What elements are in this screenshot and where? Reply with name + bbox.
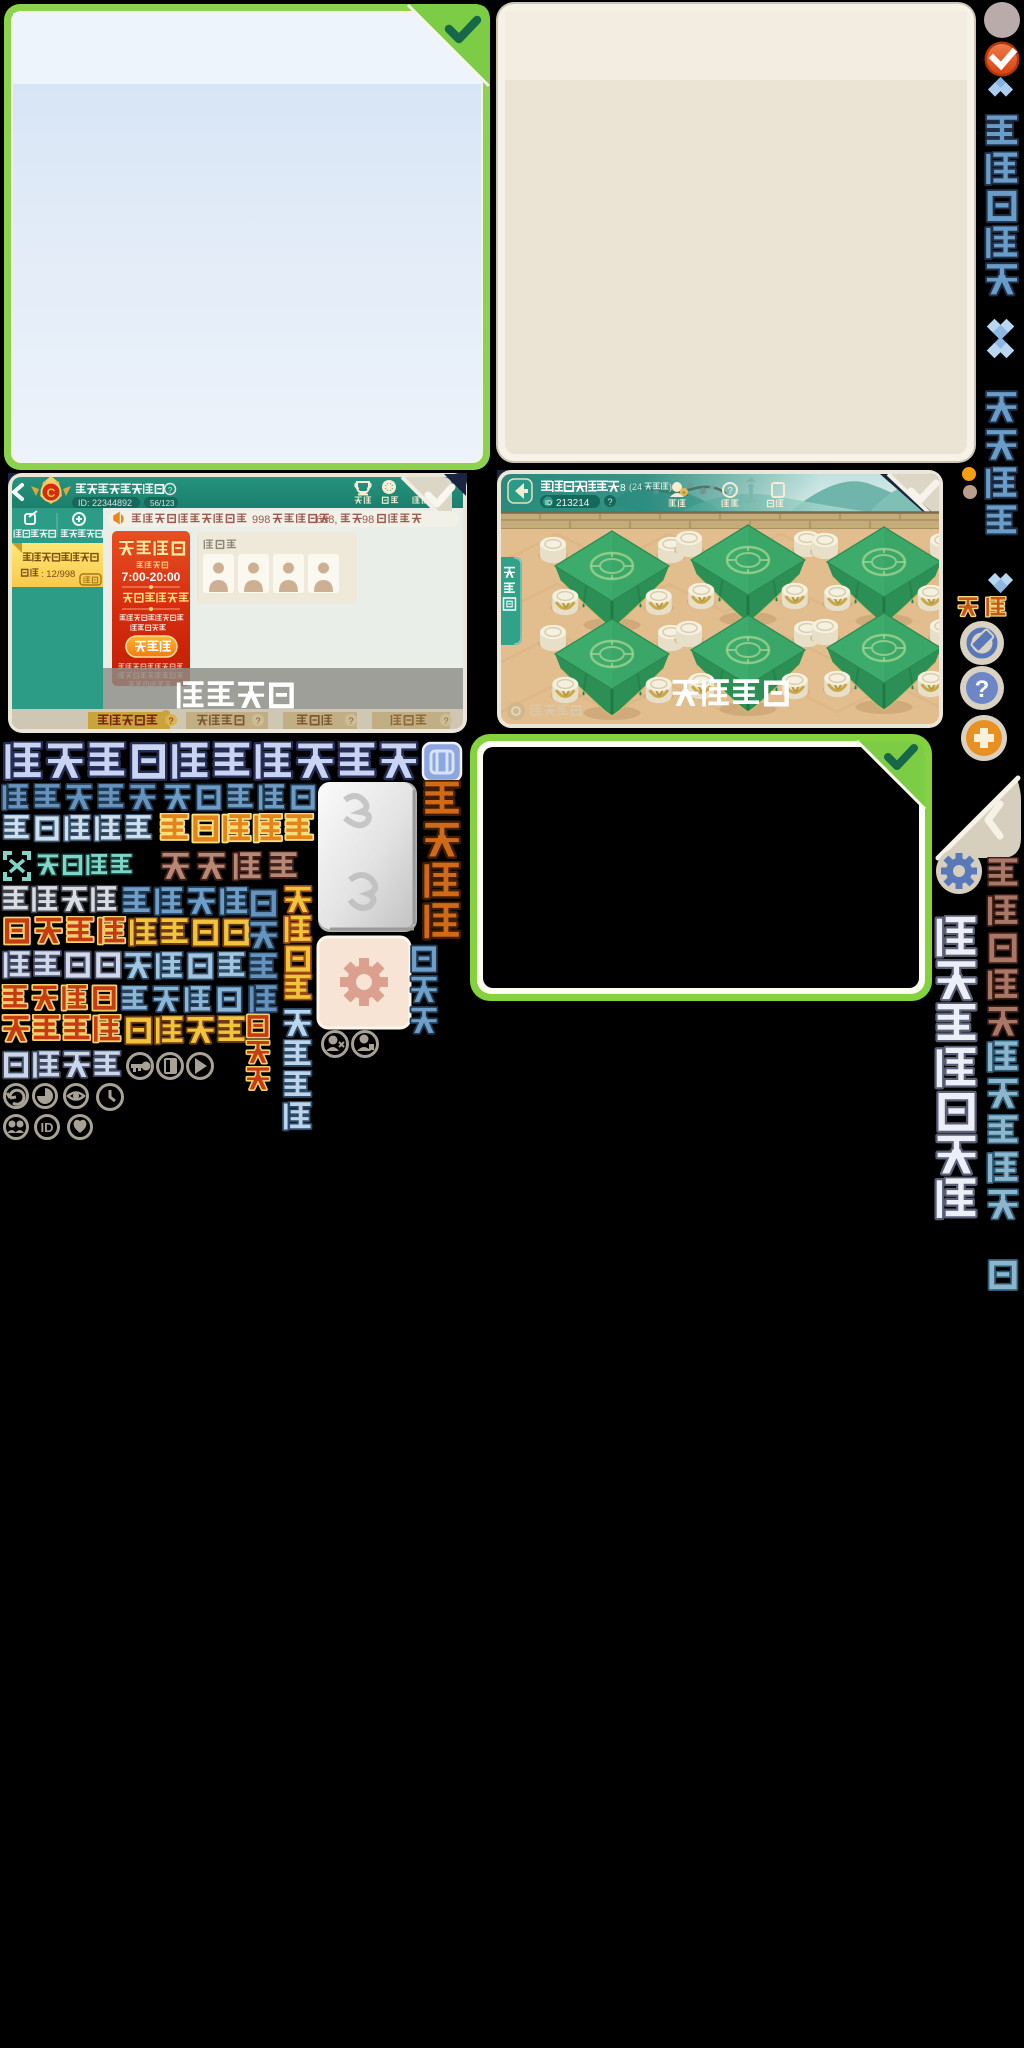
svg-text:?: ? — [727, 486, 733, 497]
svg-text:998: 998 — [252, 514, 270, 526]
svg-text:): ) — [669, 482, 672, 492]
svg-text:ID: ID — [41, 1120, 54, 1135]
svg-text:?: ? — [348, 716, 353, 726]
svg-text:(24: (24 — [629, 482, 642, 492]
svg-text:56/123: 56/123 — [150, 499, 175, 508]
svg-text:ID: 22344892: ID: 22344892 — [78, 498, 132, 508]
svg-text:?: ? — [607, 497, 612, 507]
svg-text:ID: ID — [545, 500, 552, 507]
svg-text:C: C — [47, 486, 56, 500]
svg-text:?: ? — [975, 676, 990, 703]
svg-text:688,: 688, — [316, 514, 337, 526]
svg-text:?: ? — [255, 716, 260, 726]
svg-text:8: 8 — [620, 483, 626, 494]
svg-text:?: ? — [168, 486, 173, 495]
svg-text:?: ? — [443, 716, 448, 726]
svg-text:: 12/998: : 12/998 — [41, 569, 75, 580]
svg-text:7:00-20:00: 7:00-20:00 — [122, 570, 181, 584]
svg-text:98: 98 — [362, 514, 374, 526]
svg-text:?: ? — [168, 716, 173, 726]
svg-text:213214: 213214 — [556, 498, 590, 509]
svg-text:+: + — [682, 491, 686, 497]
